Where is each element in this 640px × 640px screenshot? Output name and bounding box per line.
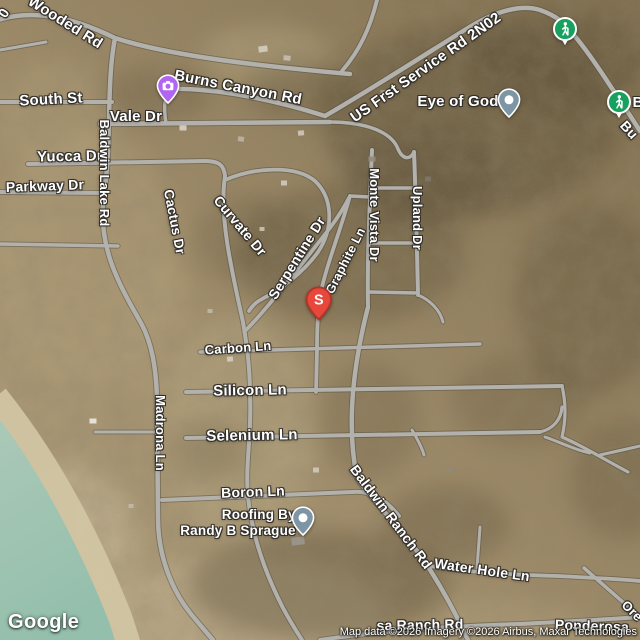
sprague-label[interactable]: Roofing ByRandy B Sprague (180, 507, 296, 539)
eye-of-god-label[interactable]: Eye of God (417, 93, 498, 111)
trailhead-marker-1[interactable] (552, 16, 578, 46)
map-canvas[interactable]: Wooded Rd0South StVale DrBurns Canyon Rd… (0, 0, 640, 640)
map-attribution: Map data ©2026 Imagery ©2026 Airbus, Max… (340, 626, 637, 638)
svg-text:S: S (314, 293, 324, 309)
eye-of-god-marker[interactable] (497, 88, 521, 118)
photo-spot-marker[interactable] (156, 74, 180, 104)
google-logo[interactable]: Google (8, 611, 79, 634)
search-result-marker[interactable]: S (305, 286, 333, 321)
sprague-marker[interactable] (291, 506, 315, 536)
trailhead-marker-2[interactable] (606, 89, 632, 119)
